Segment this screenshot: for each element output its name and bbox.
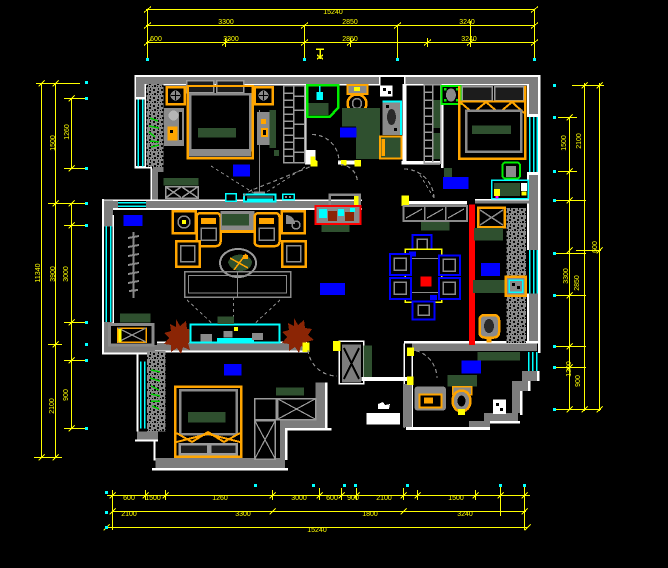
svg-text:1800: 1800: [362, 511, 378, 518]
svg-text:900: 900: [63, 389, 70, 401]
svg-text:2100: 2100: [121, 511, 137, 518]
svg-text:1500: 1500: [561, 135, 568, 151]
svg-text:600: 600: [326, 495, 338, 502]
svg-text:2850: 2850: [342, 36, 358, 43]
svg-text:900: 900: [575, 375, 582, 387]
svg-text:600: 600: [592, 241, 599, 253]
svg-text:2850: 2850: [342, 19, 358, 26]
svg-text:2100: 2100: [49, 398, 56, 414]
svg-text:1200: 1200: [566, 361, 573, 377]
svg-text:3240: 3240: [461, 36, 477, 43]
svg-text:900: 900: [347, 495, 359, 502]
svg-text:3240: 3240: [459, 19, 475, 26]
svg-text:3000: 3000: [63, 266, 70, 282]
svg-text:2100: 2100: [576, 133, 583, 149]
svg-text:3300: 3300: [223, 36, 239, 43]
svg-text:1260: 1260: [64, 124, 71, 140]
svg-text:15240: 15240: [323, 9, 343, 16]
svg-text:1500: 1500: [448, 495, 464, 502]
svg-text:600: 600: [150, 36, 162, 43]
svg-text:3300: 3300: [235, 511, 251, 518]
svg-text:1260: 1260: [212, 495, 228, 502]
svg-text:11340: 11340: [35, 263, 42, 282]
svg-text:15240: 15240: [307, 527, 327, 534]
svg-text:3900: 3900: [50, 266, 57, 282]
svg-text:3300: 3300: [563, 268, 570, 284]
svg-text:2100: 2100: [376, 495, 392, 502]
svg-text:3000: 3000: [291, 495, 307, 502]
svg-text:1500: 1500: [50, 135, 57, 151]
svg-text:3240: 3240: [457, 511, 473, 518]
svg-text:1500: 1500: [145, 495, 161, 502]
svg-text:600: 600: [123, 495, 135, 502]
svg-text:2850: 2850: [574, 275, 581, 291]
svg-text:3300: 3300: [218, 19, 234, 26]
